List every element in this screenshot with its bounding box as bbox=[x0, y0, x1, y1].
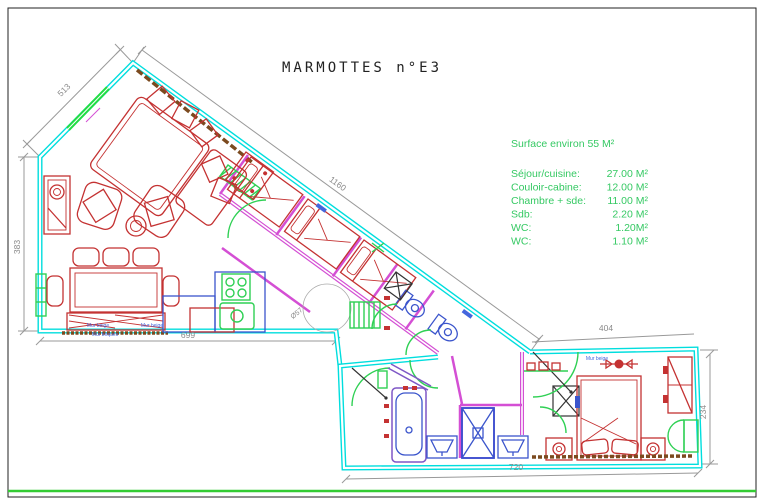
toilet-2 bbox=[428, 314, 461, 345]
console-left-wall bbox=[44, 176, 70, 234]
dim-404: 404 bbox=[599, 323, 613, 333]
surface-summary: Surface environ 55 M² Séjour/cuisine: 27… bbox=[511, 138, 649, 248]
room-value: 2.20 M² bbox=[612, 209, 648, 221]
pouf bbox=[126, 216, 146, 236]
round-table bbox=[303, 284, 351, 332]
room-label: Séjour/cuisine: bbox=[511, 168, 580, 180]
bathroom bbox=[378, 364, 528, 462]
room-label: Chambre + sde: bbox=[511, 195, 586, 207]
wall-label: Mur briques bbox=[92, 332, 119, 338]
room-label: WC: bbox=[511, 222, 531, 234]
washbasin-2 bbox=[498, 436, 528, 458]
floor-plan-page: MARMOTTES n°E3 Surface environ 55 M² Séj… bbox=[0, 0, 764, 500]
room-value: 12.00 M² bbox=[607, 182, 649, 194]
kitchen bbox=[163, 272, 390, 332]
room-label: Sdb: bbox=[511, 209, 533, 221]
wall-vent-marks bbox=[316, 203, 473, 319]
room-label: WC: bbox=[511, 236, 531, 248]
wardrobe bbox=[663, 357, 692, 413]
armchair-1 bbox=[75, 180, 124, 232]
window-top-left bbox=[68, 88, 108, 129]
dim-1160: 1160 bbox=[327, 174, 348, 193]
surface-header: Surface environ 55 M² bbox=[511, 138, 615, 150]
room-value: 27.00 M² bbox=[607, 168, 649, 180]
plan-title: MARMOTTES n°E3 bbox=[282, 60, 442, 76]
dimension-lines bbox=[18, 44, 718, 483]
shower bbox=[462, 408, 494, 458]
dim-720: 720 bbox=[509, 462, 523, 472]
double-bed bbox=[575, 376, 641, 460]
room-value: 1.10 M² bbox=[612, 236, 648, 248]
dim-234: 234 bbox=[698, 405, 708, 419]
room-label: Couloir-cabine: bbox=[511, 182, 582, 194]
sloped-ceiling-line bbox=[388, 364, 431, 390]
room-value: 1.20M² bbox=[615, 222, 648, 234]
wall-label: Mur beige bbox=[141, 323, 163, 329]
closet-doors bbox=[668, 420, 698, 452]
window-sill-hatch bbox=[532, 456, 694, 457]
oven bbox=[220, 303, 254, 329]
floor-plan-drawing: MARMOTTES n°E3 Surface environ 55 M² Séj… bbox=[0, 0, 764, 500]
dim-513: 513 bbox=[55, 81, 72, 98]
room-value: 11.00 M² bbox=[607, 195, 648, 207]
dim-699: 699 bbox=[181, 330, 195, 340]
washbasin-1 bbox=[427, 436, 457, 458]
bathtub bbox=[392, 386, 426, 462]
stove bbox=[222, 274, 250, 300]
dim-383: 383 bbox=[12, 240, 22, 254]
dining-set bbox=[47, 248, 179, 333]
wall-label: Mur beige bbox=[87, 323, 109, 329]
wall-label: Mur beige bbox=[586, 356, 608, 362]
dim-table-diameter: Ø57 bbox=[290, 307, 305, 321]
